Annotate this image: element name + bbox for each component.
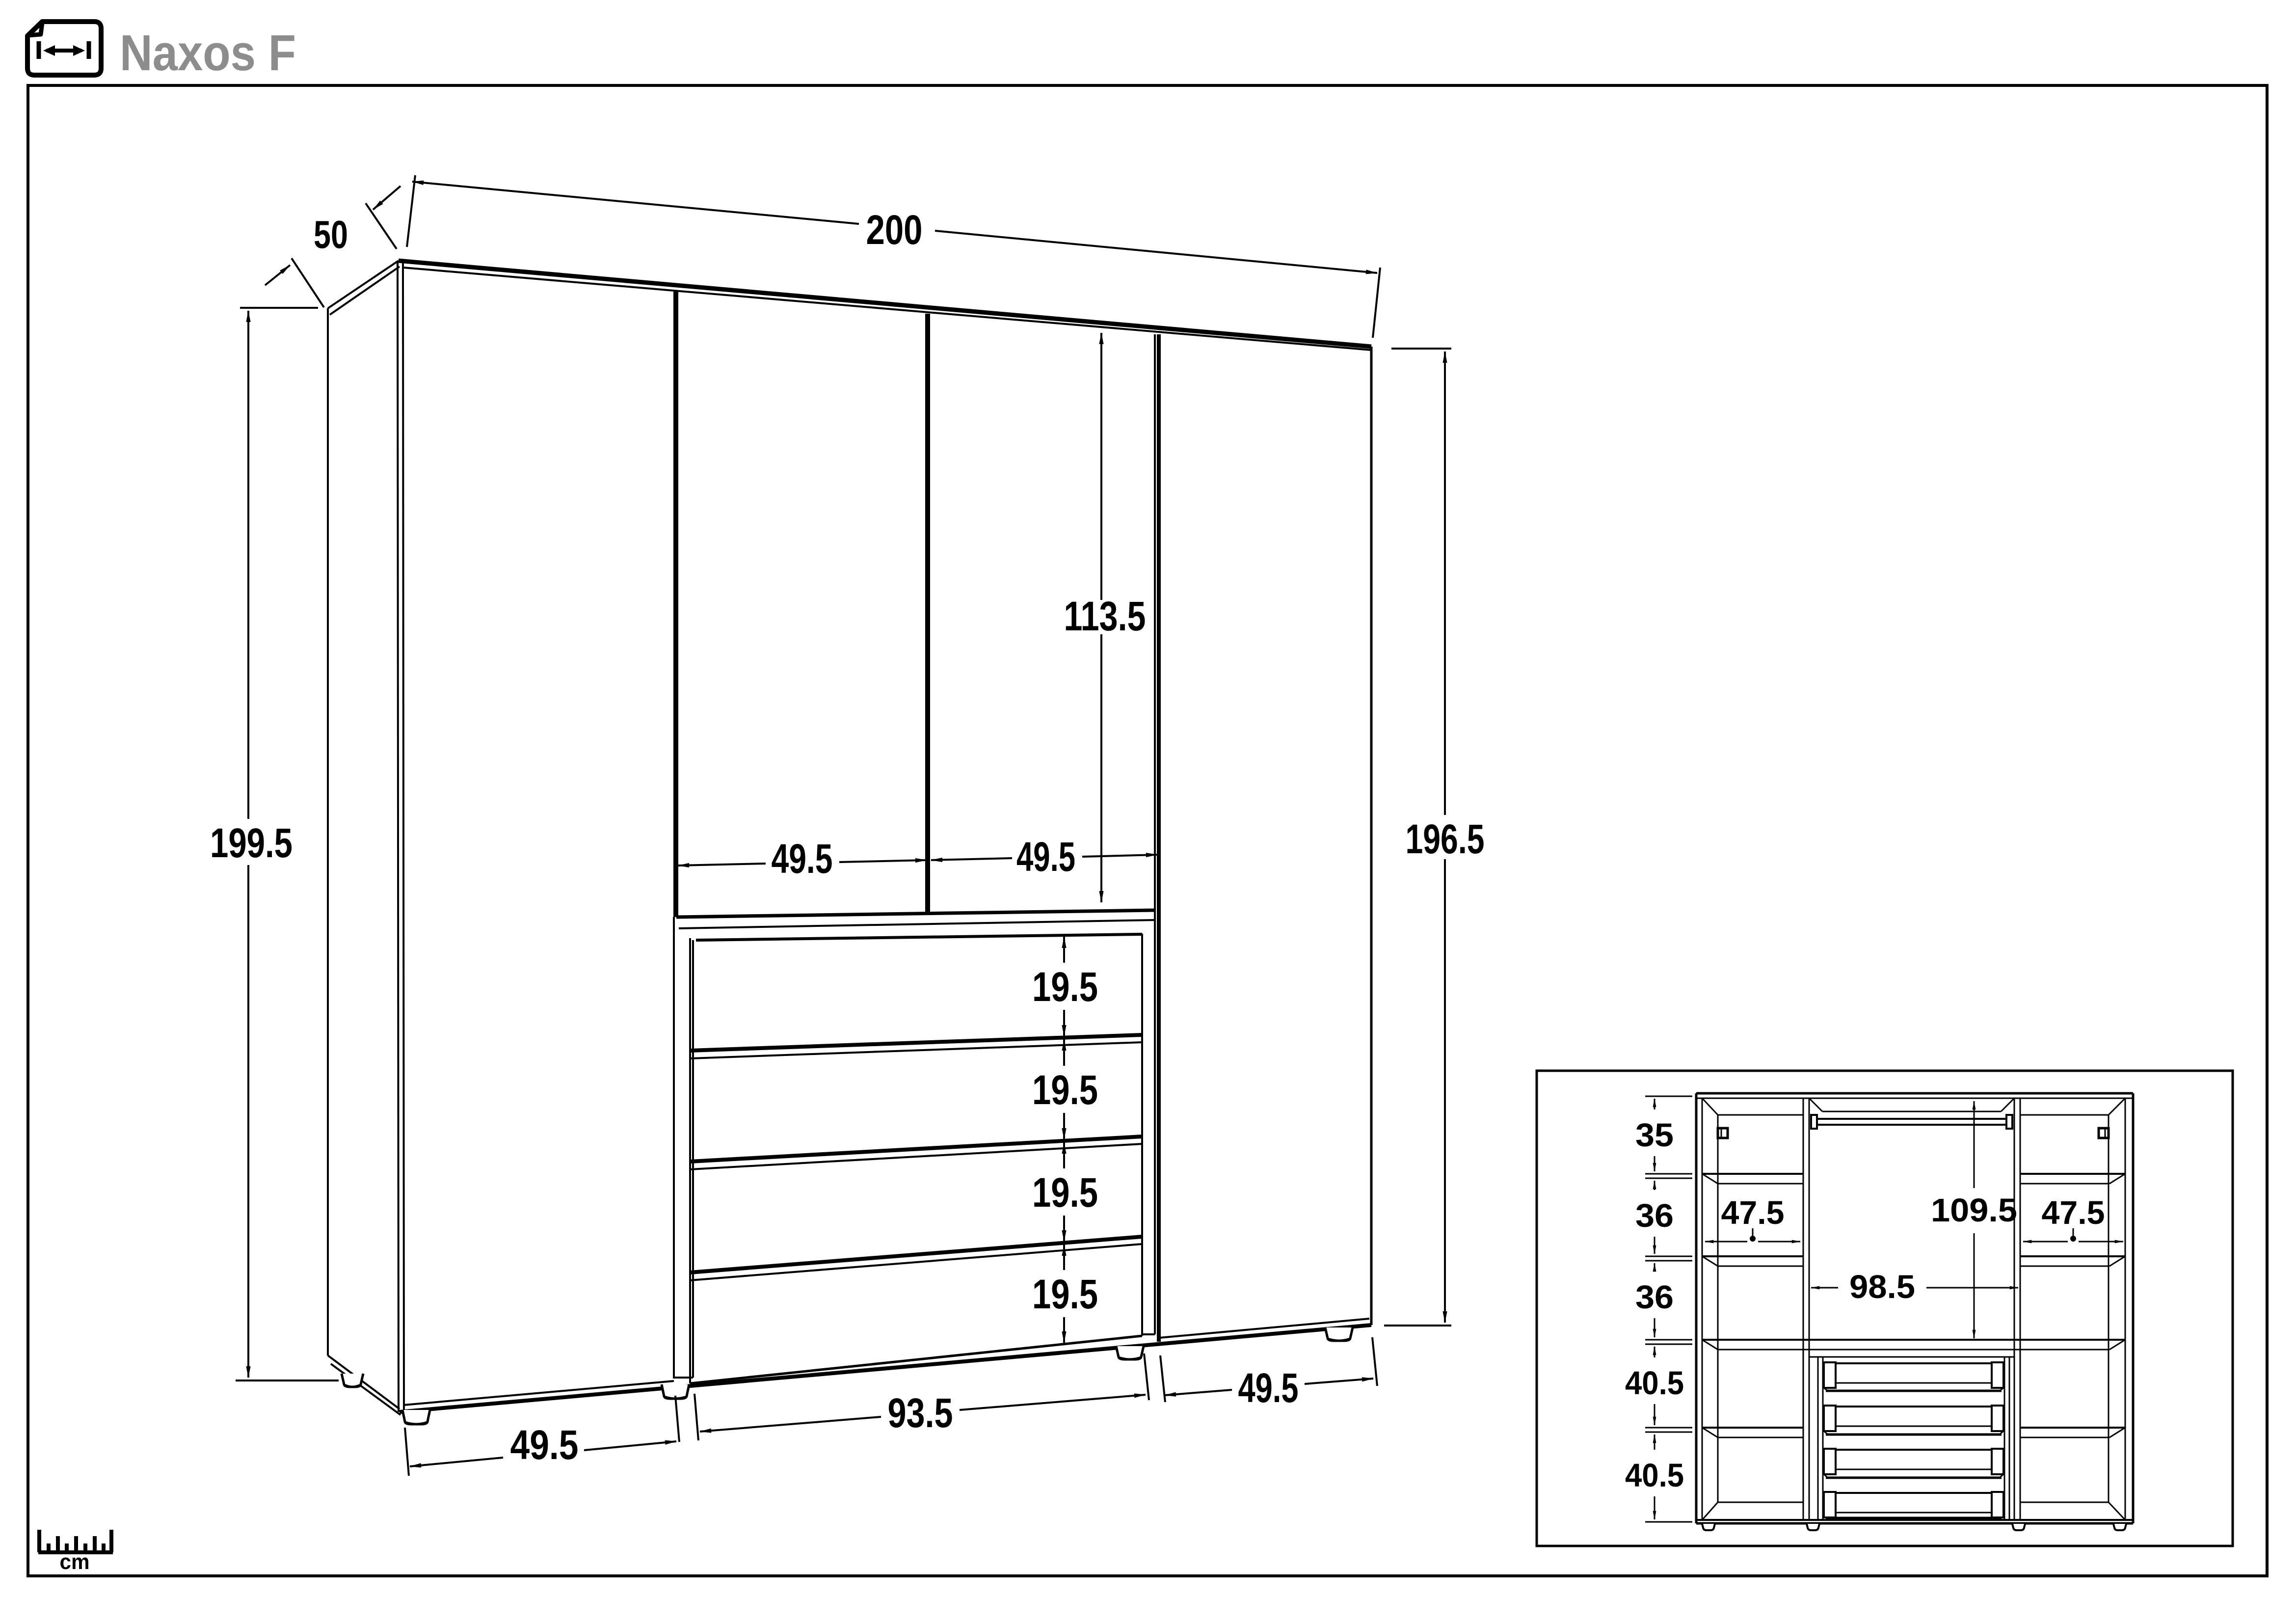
svg-text:49.5: 49.5: [1238, 1365, 1299, 1411]
svg-text:200: 200: [866, 207, 923, 253]
svg-text:19.5: 19.5: [1032, 1169, 1098, 1216]
svg-text:19.5: 19.5: [1032, 1067, 1098, 1113]
svg-text:113.5: 113.5: [1064, 593, 1146, 639]
svg-text:36: 36: [1635, 1197, 1674, 1234]
svg-text:cm: cm: [60, 1550, 90, 1574]
svg-text:49.5: 49.5: [1016, 834, 1075, 880]
svg-text:49.5: 49.5: [510, 1422, 579, 1468]
svg-text:109.5: 109.5: [1931, 1192, 2017, 1229]
svg-text:50: 50: [314, 213, 348, 256]
svg-text:35: 35: [1635, 1117, 1674, 1154]
svg-text:19.5: 19.5: [1032, 1271, 1098, 1317]
svg-text:40.5: 40.5: [1625, 1457, 1684, 1494]
svg-text:47.5: 47.5: [1721, 1194, 1785, 1231]
svg-text:19.5: 19.5: [1032, 964, 1098, 1010]
svg-text:199.5: 199.5: [210, 820, 293, 866]
svg-text:40.5: 40.5: [1625, 1365, 1684, 1402]
svg-text:Naxos F: Naxos F: [120, 25, 296, 81]
svg-text:98.5: 98.5: [1849, 1269, 1915, 1305]
svg-text:36: 36: [1635, 1279, 1674, 1316]
svg-text:196.5: 196.5: [1406, 816, 1485, 862]
svg-text:93.5: 93.5: [888, 1390, 953, 1436]
svg-text:47.5: 47.5: [2042, 1194, 2105, 1231]
svg-text:49.5: 49.5: [772, 836, 833, 882]
